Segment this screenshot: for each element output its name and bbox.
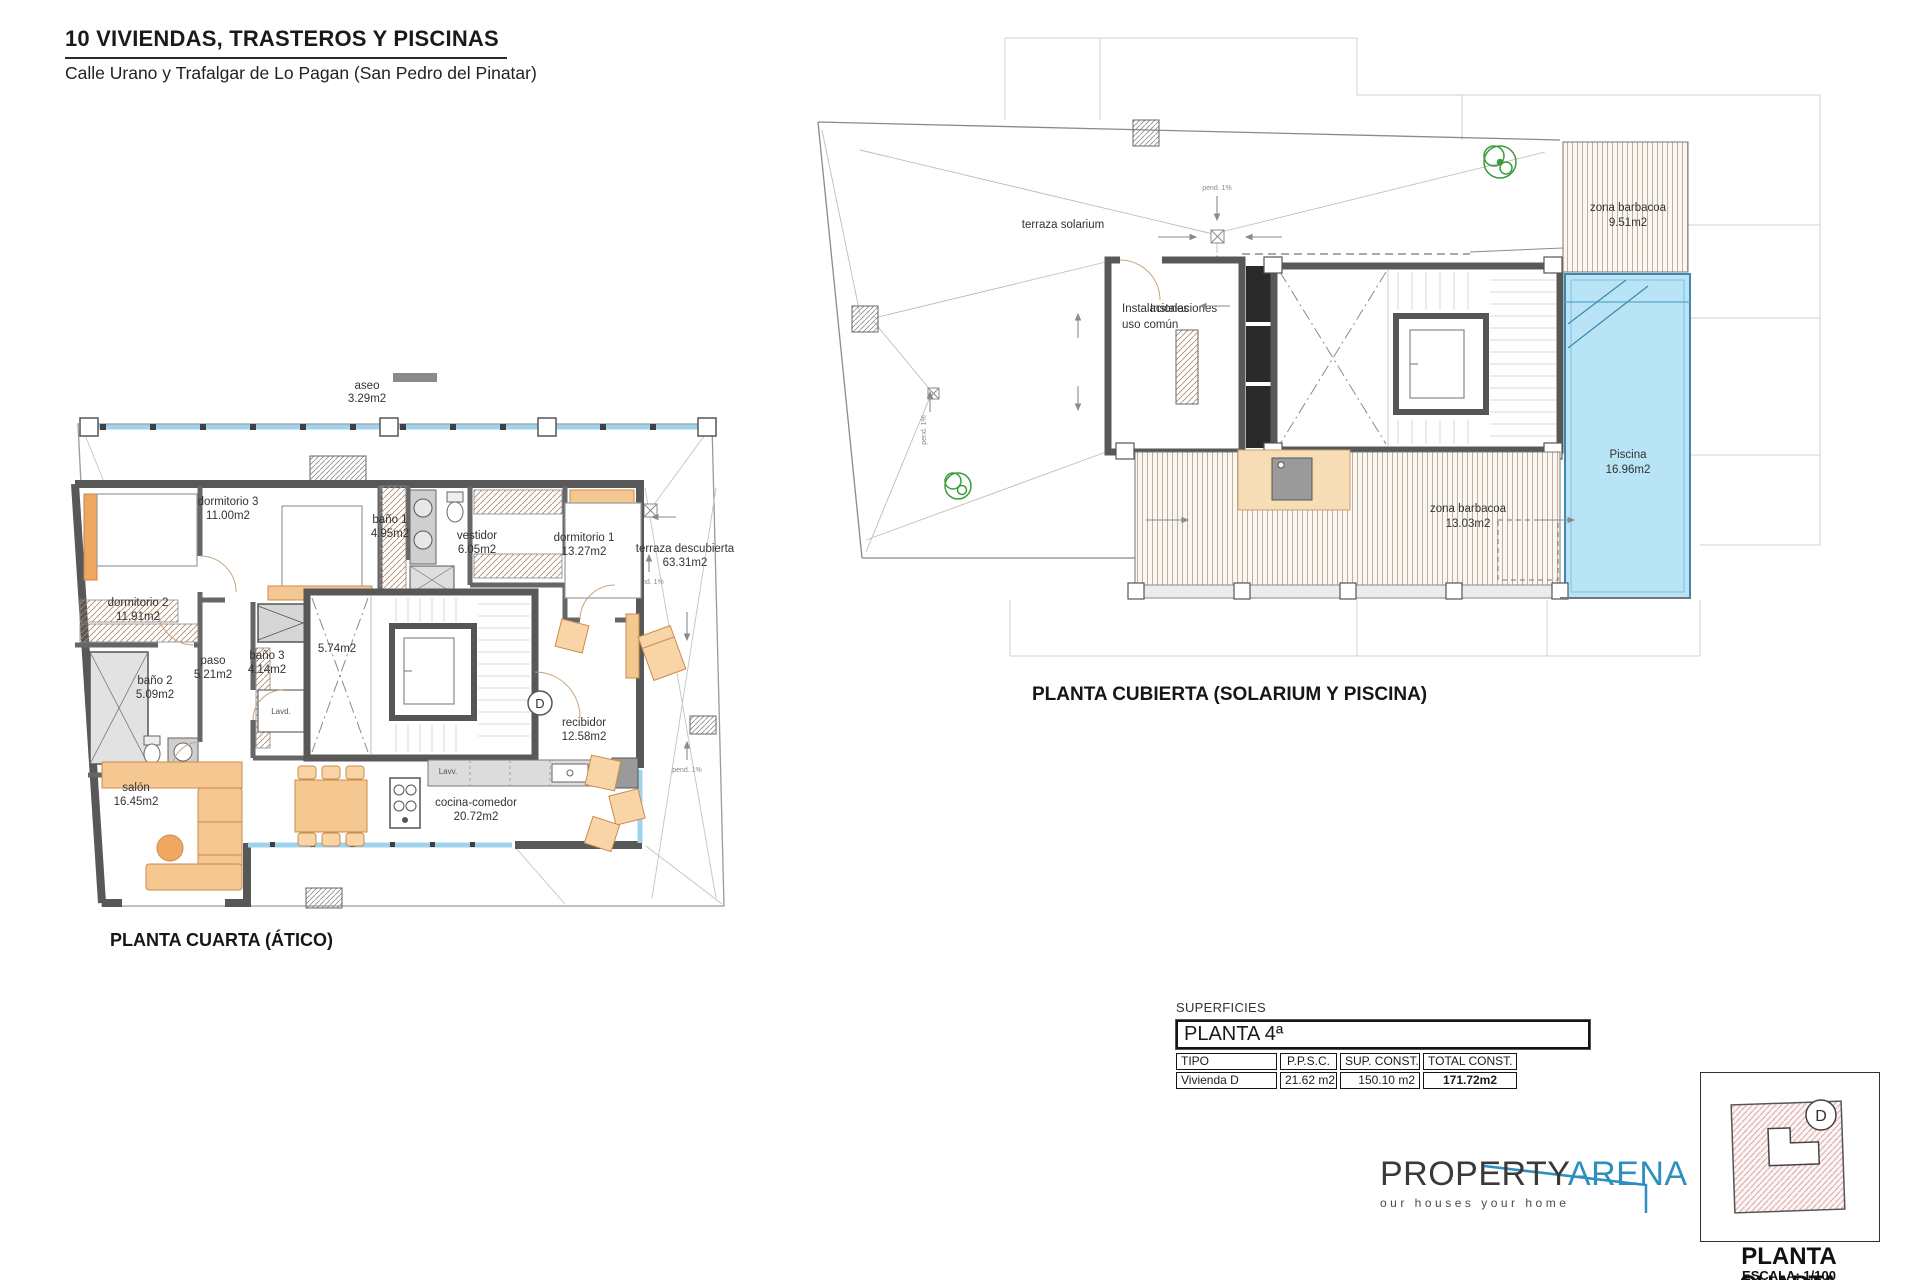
- aseo-element: [393, 373, 437, 382]
- keyplan-scale: ESCALA: 1/100: [1700, 1268, 1878, 1280]
- room-label-patio: 5.74m2: [318, 643, 356, 655]
- room-label-dormitorio1: dormitorio 1: [554, 532, 615, 544]
- room-label-dormitorio2: dormitorio 2: [108, 597, 169, 609]
- instalaciones-room: [1108, 253, 1242, 452]
- unit-letter-badge: D: [528, 691, 552, 715]
- room-label-cocina: cocina-comedor: [435, 797, 517, 809]
- drawing-sheet: 10 VIVIENDAS, TRASTEROS Y PISCINAS Calle…: [0, 0, 1920, 1280]
- room-label-recibidor: recibidor: [562, 717, 606, 729]
- room-label-piscina: Piscina: [1609, 449, 1647, 461]
- svg-text:16.45m2: 16.45m2: [114, 796, 159, 808]
- logo-word-property: PROPERTY: [1380, 1155, 1568, 1193]
- svg-text:13.27m2: 13.27m2: [562, 546, 607, 558]
- pend-label: pend. 1%: [1202, 185, 1232, 192]
- svg-text:20.72m2: 20.72m2: [454, 811, 499, 823]
- logo-tagline: our houses your home: [1380, 1196, 1688, 1210]
- cell-total-const-value: 171.72m2: [1423, 1072, 1517, 1089]
- room-label-barbacoa2: zona barbacoa: [1430, 503, 1507, 515]
- room-label-terraza: terraza descubierta: [636, 543, 735, 555]
- svg-text:6.05m2: 6.05m2: [458, 544, 496, 556]
- svg-text:9.51m2: 9.51m2: [1609, 217, 1647, 229]
- room-label-barbacoa1: zona barbacoa: [1590, 202, 1667, 214]
- svg-text:Instalaciones: Instalaciones: [1122, 303, 1189, 315]
- svg-text:12.58m2: 12.58m2: [562, 731, 607, 743]
- pend-label: pend. 1%: [921, 415, 928, 445]
- pool: [1565, 274, 1690, 598]
- floor-header: PLANTA 4ª: [1176, 1020, 1590, 1049]
- room-label-bano3: baño 3: [249, 650, 284, 662]
- cell-vivienda: Vivienda D: [1176, 1072, 1277, 1089]
- dining-table: [295, 766, 367, 846]
- shaft-blocks: [1246, 266, 1274, 448]
- caption-planta-cuarta-atico: PLANTA CUARTA (ÁTICO): [110, 930, 333, 951]
- elevator: [392, 626, 474, 718]
- keyplan-box: D: [1700, 1072, 1880, 1242]
- svg-text:4.95m2: 4.95m2: [371, 528, 409, 540]
- plan-cubierta-drawing: pend. 1% pend. 1%: [818, 38, 1820, 656]
- svg-text:11.00m2: 11.00m2: [206, 510, 250, 522]
- label-lavd: Lavd.: [271, 707, 291, 716]
- col-header-ppsc: P.P.S.C.: [1280, 1053, 1337, 1070]
- room-label-salon: salón: [122, 782, 150, 794]
- svg-text:D: D: [535, 696, 544, 711]
- room-label-bano2: baño 2: [137, 675, 172, 687]
- elevator: [1396, 316, 1486, 412]
- room-label-vestidor: vestidor: [457, 530, 497, 542]
- svg-text:D: D: [1815, 1108, 1827, 1125]
- logo-word-arena: ARENA: [1568, 1155, 1688, 1193]
- svg-text:63.31m2: 63.31m2: [663, 557, 708, 569]
- stair-core: [307, 592, 535, 758]
- room-label-paso: paso: [201, 655, 226, 667]
- surfaces-table: SUPERFICIES PLANTA 4ª TIPO P.P.S.C. SUP.…: [1176, 1000, 1590, 1089]
- svg-text:5.09m2: 5.09m2: [136, 689, 174, 701]
- room-label-solarium: terraza solarium: [1022, 219, 1104, 231]
- floorplans-drawing: pend. 1% pend. 1% pend. 1%: [0, 0, 1920, 1280]
- label-lavv: Lavv.: [439, 767, 458, 776]
- col-header-tipo: TIPO: [1176, 1053, 1277, 1070]
- plan-atico-drawing: pend. 1% pend. 1% pend. 1%: [75, 373, 735, 908]
- svg-text:3.29m2: 3.29m2: [348, 393, 386, 405]
- room-label-dormitorio3: dormitorio 3: [198, 496, 259, 508]
- cell-sup-const-value: 150.10 m2: [1340, 1072, 1420, 1089]
- svg-text:uso común: uso común: [1122, 319, 1178, 331]
- keyplan-drawing: D: [1701, 1073, 1879, 1241]
- cell-ppsc-value: 21.62 m2: [1280, 1072, 1337, 1089]
- room-label-aseo: aseo: [355, 380, 380, 392]
- svg-text:4.14m2: 4.14m2: [248, 664, 286, 676]
- property-arena-logo: PROPERTYARENA our houses your home: [1380, 1156, 1688, 1210]
- svg-text:13.03m2: 13.03m2: [1446, 518, 1491, 530]
- caption-planta-cubierta: PLANTA CUBIERTA (SOLARIUM Y PISCINA): [1032, 684, 1427, 706]
- col-header-sup-const: SUP. CONST.: [1340, 1053, 1420, 1070]
- svg-text:16.96m2: 16.96m2: [1606, 464, 1651, 476]
- svg-text:11.91m2: 11.91m2: [116, 611, 160, 623]
- surfaces-title: SUPERFICIES: [1176, 1000, 1590, 1015]
- svg-text:5.21m2: 5.21m2: [194, 669, 232, 681]
- room-label-bano1: baño 1: [372, 514, 407, 526]
- pend-label: pend. 1%: [672, 767, 702, 774]
- col-header-total-const: TOTAL CONST.: [1423, 1053, 1517, 1070]
